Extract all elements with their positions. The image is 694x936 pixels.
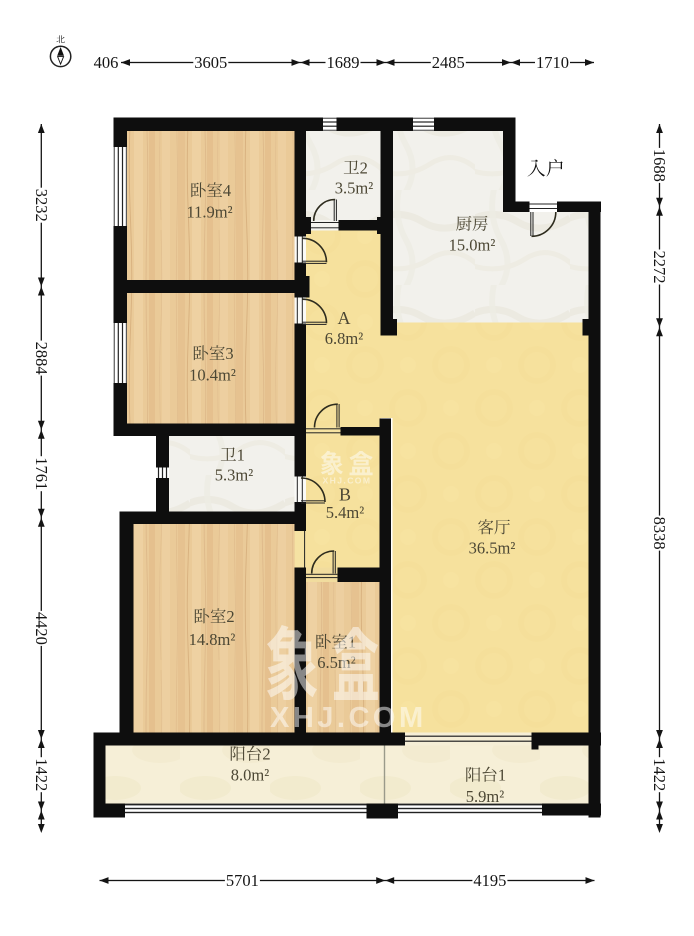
svg-text:2884: 2884: [32, 342, 51, 375]
svg-text:3.5m²: 3.5m²: [335, 179, 373, 198]
svg-text:5.4m²: 5.4m²: [326, 503, 364, 522]
svg-text:11.9m²: 11.9m²: [186, 203, 232, 222]
svg-text:2272: 2272: [650, 251, 669, 284]
svg-text:8.0m²: 8.0m²: [231, 766, 269, 785]
svg-text:406: 406: [94, 53, 119, 72]
svg-text:3605: 3605: [194, 53, 227, 72]
svg-text:15.0m²: 15.0m²: [449, 236, 496, 255]
svg-text:3: 3: [225, 344, 233, 363]
svg-text:3232: 3232: [32, 189, 51, 222]
svg-text:XHJ.COM: XHJ.COM: [270, 702, 427, 734]
svg-text:B: B: [339, 485, 351, 505]
svg-text:2: 2: [262, 745, 270, 764]
svg-text:1761: 1761: [32, 457, 51, 490]
svg-text:A: A: [338, 308, 351, 328]
svg-text:1689: 1689: [327, 53, 360, 72]
svg-text:5.3m²: 5.3m²: [215, 466, 253, 485]
svg-text:14.8m²: 14.8m²: [189, 630, 236, 649]
svg-text:2: 2: [226, 607, 234, 626]
svg-text:8338: 8338: [650, 517, 669, 550]
svg-text:5701: 5701: [226, 871, 259, 890]
svg-text:1422: 1422: [650, 758, 669, 791]
svg-text:4: 4: [223, 181, 231, 200]
svg-text:1710: 1710: [536, 53, 569, 72]
svg-text:5.9m²: 5.9m²: [466, 787, 504, 806]
svg-text:2: 2: [360, 159, 368, 178]
svg-text:4195: 4195: [473, 871, 506, 890]
svg-text:10.4m²: 10.4m²: [189, 366, 236, 385]
svg-text:2485: 2485: [432, 53, 465, 72]
svg-text:36.5m²: 36.5m²: [469, 539, 516, 558]
svg-text:6.8m²: 6.8m²: [325, 329, 363, 348]
svg-text:1: 1: [498, 766, 506, 785]
svg-text:XHJ.COM: XHJ.COM: [323, 476, 372, 486]
svg-text:4420: 4420: [32, 612, 51, 645]
svg-text:1: 1: [237, 446, 245, 465]
svg-text:1688: 1688: [650, 149, 669, 182]
svg-text:1422: 1422: [32, 758, 51, 791]
